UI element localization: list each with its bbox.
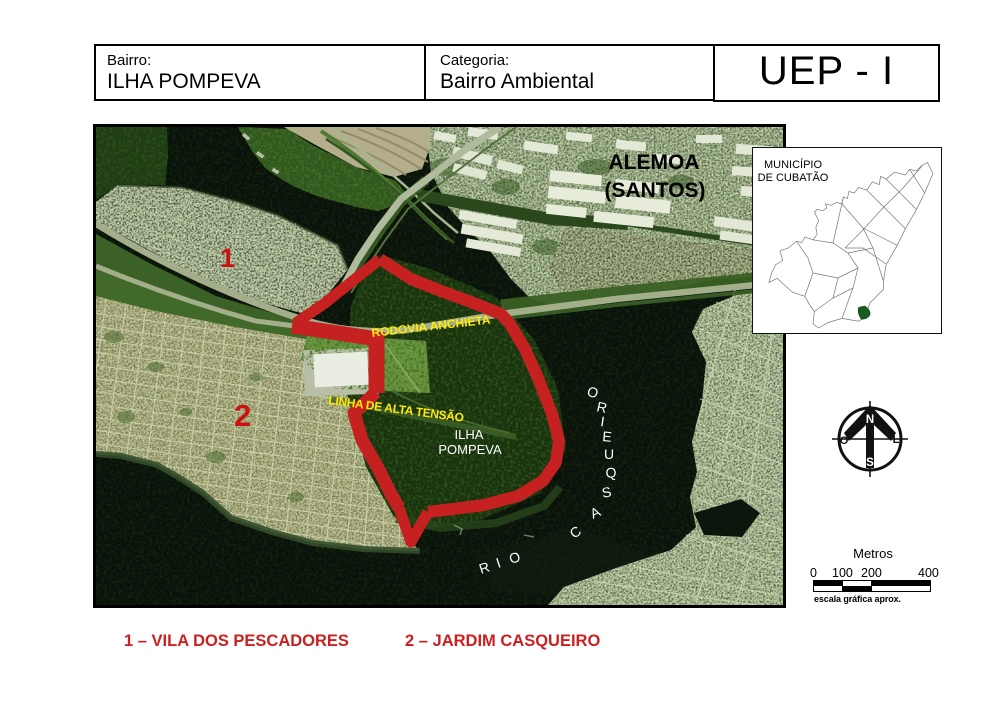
svg-text:ALEMOA: ALEMOA (609, 151, 700, 174)
svg-text:E: E (602, 428, 613, 445)
svg-text:L: L (893, 434, 900, 446)
svg-text:(SANTOS): (SANTOS) (604, 179, 705, 202)
svg-text:1: 1 (220, 243, 235, 273)
svg-text:POMPEVA: POMPEVA (438, 442, 502, 457)
svg-text:ILHA: ILHA (455, 427, 484, 442)
svg-text:Q: Q (605, 464, 617, 481)
svg-text:O: O (840, 435, 849, 447)
svg-text:MUNICÍPIO: MUNICÍPIO (764, 158, 823, 171)
svg-text:2: 2 (234, 398, 251, 433)
svg-text:S: S (866, 457, 874, 469)
svg-text:U: U (604, 446, 614, 462)
svg-text:N: N (866, 414, 874, 426)
svg-text:DE CUBATÃO: DE CUBATÃO (758, 171, 829, 184)
